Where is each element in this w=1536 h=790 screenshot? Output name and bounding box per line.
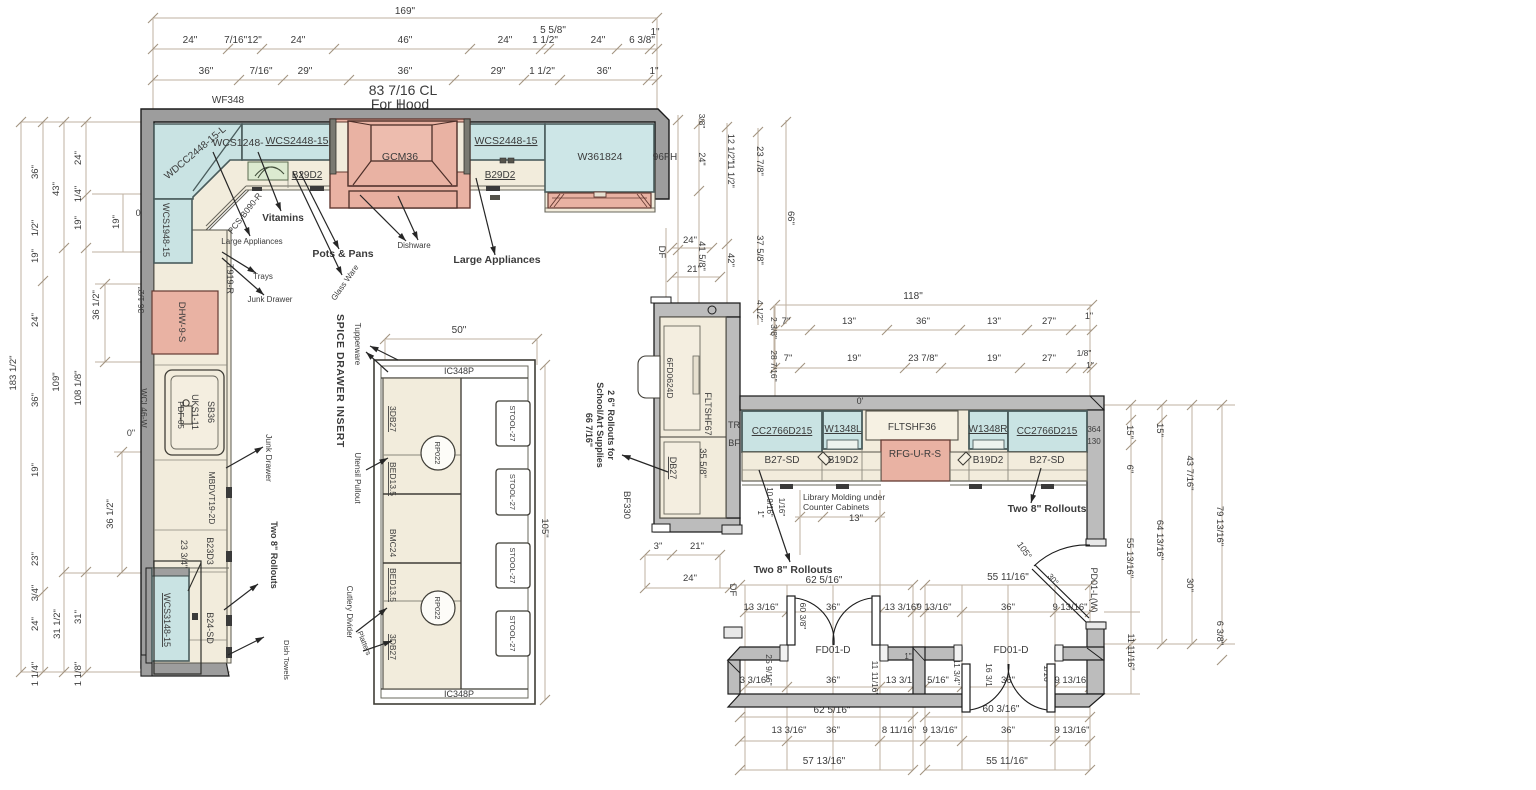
svg-text:15": 15" <box>1124 425 1135 439</box>
svg-text:11 1/2": 11 1/2" <box>726 160 736 188</box>
svg-text:RP022: RP022 <box>433 442 442 465</box>
svg-text:24": 24" <box>183 35 198 46</box>
svg-text:15": 15" <box>1154 423 1165 437</box>
svg-text:23": 23" <box>30 552 41 566</box>
svg-text:WCS2448-15: WCS2448-15 <box>474 135 537 147</box>
svg-text:1": 1" <box>756 510 765 517</box>
svg-text:B29D2: B29D2 <box>485 170 516 181</box>
svg-text:19": 19" <box>987 353 1001 364</box>
svg-text:43 7/16": 43 7/16" <box>1184 455 1195 490</box>
svg-text:1": 1" <box>904 652 911 661</box>
svg-text:Counter Cabinets: Counter Cabinets <box>803 502 869 512</box>
svg-text:24": 24" <box>697 152 707 165</box>
svg-text:9 13/16": 9 13/16" <box>1054 725 1089 736</box>
svg-text:FD01-D: FD01-D <box>993 645 1028 656</box>
svg-text:36": 36" <box>30 165 41 179</box>
svg-text:55 11/16": 55 11/16" <box>987 572 1029 583</box>
svg-text:DF: DF <box>727 584 738 597</box>
svg-text:7": 7" <box>784 353 793 364</box>
svg-text:WCL46-W: WCL46-W <box>139 388 149 427</box>
svg-text:WCS1248-: WCS1248- <box>212 137 264 149</box>
svg-text:IC348P: IC348P <box>444 366 474 376</box>
svg-text:19": 19" <box>73 216 84 230</box>
svg-text:13": 13" <box>849 513 863 524</box>
svg-text:1 1/8": 1 1/8" <box>73 662 84 687</box>
svg-text:31 1/2": 31 1/2" <box>52 609 63 639</box>
svg-text:57 13/16": 57 13/16" <box>803 756 846 767</box>
svg-text:96FH: 96FH <box>653 152 677 163</box>
svg-text:7/16"12": 7/16"12" <box>224 35 262 46</box>
svg-text:WF348: WF348 <box>212 95 245 106</box>
svg-text:55 11/16": 55 11/16" <box>986 756 1028 767</box>
svg-text:Tupperware: Tupperware <box>353 323 362 366</box>
svg-text:Two 8" Rollouts: Two 8" Rollouts <box>269 521 279 589</box>
svg-text:FLTSHF36: FLTSHF36 <box>888 422 937 433</box>
svg-text:STOOL-27: STOOL-27 <box>508 547 517 583</box>
svg-text:BED13.5: BED13.5 <box>388 462 398 496</box>
svg-text:105": 105" <box>539 518 550 537</box>
svg-text:FD01-D: FD01-D <box>815 645 850 656</box>
svg-text:Utensil Pullout: Utensil Pullout <box>353 452 362 504</box>
svg-text:9 13/16": 9 13/16" <box>922 725 957 736</box>
svg-text:25 9/16": 25 9/16" <box>764 654 774 685</box>
svg-text:PDF-05: PDF-05 <box>176 401 185 429</box>
svg-text:13 3/1: 13 3/1 <box>886 675 912 686</box>
svg-text:Library Molding under: Library Molding under <box>803 492 885 502</box>
svg-text:BED13.5: BED13.5 <box>388 568 398 602</box>
svg-text:1/4": 1/4" <box>73 186 84 203</box>
svg-text:11 3/4": 11 3/4" <box>952 659 962 685</box>
svg-text:6 3/8": 6 3/8" <box>1214 621 1225 646</box>
svg-text:364: 364 <box>1087 425 1101 434</box>
svg-text:19": 19" <box>111 215 122 229</box>
svg-text:79 13/16": 79 13/16" <box>1214 506 1225 546</box>
svg-text:SPICE DRAWER INSERT: SPICE DRAWER INSERT <box>334 314 346 448</box>
svg-text:1 1/2": 1 1/2" <box>532 35 558 46</box>
svg-text:28 7/16": 28 7/16" <box>769 350 779 381</box>
svg-text:6": 6" <box>1124 465 1135 474</box>
svg-text:Large Appliances: Large Appliances <box>453 254 540 266</box>
svg-text:36": 36" <box>199 66 214 77</box>
svg-text:B23D3: B23D3 <box>205 537 215 565</box>
svg-text:11 11/16": 11 11/16" <box>1126 634 1136 671</box>
svg-text:13 3/16": 13 3/16" <box>884 602 919 613</box>
svg-text:41 5/8": 41 5/8" <box>696 241 707 271</box>
svg-text:35 5/8": 35 5/8" <box>697 448 708 478</box>
svg-text:24": 24" <box>30 313 41 327</box>
svg-text:Two 8" Rollouts: Two 8" Rollouts <box>1008 503 1087 515</box>
svg-text:1/16": 1/16" <box>777 498 786 517</box>
svg-text:WCS3148-15: WCS3148-15 <box>162 593 172 647</box>
svg-text:4 1/2": 4 1/2" <box>755 300 765 322</box>
svg-text:36": 36" <box>826 725 840 736</box>
svg-text:1": 1" <box>1085 311 1093 321</box>
svg-text:1 1/4": 1 1/4" <box>30 662 41 687</box>
svg-text:24": 24" <box>498 35 513 46</box>
svg-text:B24-SD: B24-SD <box>205 612 215 644</box>
svg-text:WCS1948-15: WCS1948-15 <box>161 203 171 257</box>
svg-text:WCS2448-15: WCS2448-15 <box>265 135 328 147</box>
svg-text:0": 0" <box>127 428 135 438</box>
svg-text:9 13/16": 9 13/16" <box>1054 675 1089 686</box>
svg-text:STOOL-27: STOOL-27 <box>508 474 517 510</box>
svg-text:7/16": 7/16" <box>249 66 272 77</box>
svg-text:DHW-9-S: DHW-9-S <box>176 302 187 342</box>
svg-text:24": 24" <box>291 35 306 46</box>
svg-text:Dishware: Dishware <box>397 241 431 250</box>
svg-text:Pots & Pans: Pots & Pans <box>312 248 373 260</box>
svg-text:3/8": 3/8" <box>697 114 707 129</box>
svg-text:31": 31" <box>73 610 84 624</box>
svg-text:2 6" Rollouts for: 2 6" Rollouts for <box>606 390 616 460</box>
svg-text:Large Appliances: Large Appliances <box>221 237 282 246</box>
svg-text:43": 43" <box>51 182 62 196</box>
svg-text:3DB27: 3DB27 <box>388 406 398 432</box>
svg-text:2 3/8": 2 3/8" <box>769 317 779 339</box>
svg-text:24": 24" <box>30 617 41 631</box>
svg-text:60 3/8": 60 3/8" <box>798 603 808 630</box>
svg-text:108 1/8": 108 1/8" <box>73 370 84 405</box>
svg-text:5/16": 5/16" <box>927 675 949 686</box>
svg-text:B27-SD: B27-SD <box>764 455 799 466</box>
svg-text:1": 1" <box>650 27 660 38</box>
svg-text:Two 8" Rollouts: Two 8" Rollouts <box>754 564 833 576</box>
svg-text:CC2766D215: CC2766D215 <box>752 426 813 437</box>
svg-text:24": 24" <box>591 35 606 46</box>
svg-text:TR: TR <box>728 420 740 430</box>
svg-text:DB27: DB27 <box>668 457 678 480</box>
svg-text:3/4": 3/4" <box>30 585 41 602</box>
svg-text:23 7/8": 23 7/8" <box>754 146 765 176</box>
svg-text:64 13/16": 64 13/16" <box>1154 520 1165 560</box>
svg-text:30": 30" <box>1184 578 1195 592</box>
svg-text:118": 118" <box>903 291 923 302</box>
svg-text:24": 24" <box>683 235 697 246</box>
svg-text:W1348R: W1348R <box>969 424 1008 435</box>
svg-text:16 3/1: 16 3/1 <box>984 663 994 687</box>
svg-text:55 13/16": 55 13/16" <box>1124 538 1135 578</box>
svg-text:13": 13" <box>987 316 1001 327</box>
svg-text:62 5/16": 62 5/16" <box>806 575 843 586</box>
svg-text:36": 36" <box>30 393 41 407</box>
svg-text:19": 19" <box>847 353 861 364</box>
svg-text:GCM36: GCM36 <box>382 151 418 163</box>
svg-text:1 1/2": 1 1/2" <box>529 66 555 77</box>
svg-text:Trays: Trays <box>253 272 273 281</box>
svg-text:27": 27" <box>1042 353 1056 364</box>
svg-text:42": 42" <box>725 253 736 267</box>
svg-text:3": 3" <box>654 541 663 552</box>
svg-text:3DB27: 3DB27 <box>388 634 398 660</box>
svg-text:29": 29" <box>298 66 313 77</box>
svg-text:RP022: RP022 <box>433 597 442 620</box>
svg-text:Dish Towels: Dish Towels <box>282 640 291 680</box>
svg-text:1/2": 1/2" <box>30 220 41 237</box>
svg-text:1/8": 1/8" <box>1077 348 1092 358</box>
svg-text:36": 36" <box>398 66 413 77</box>
svg-text:MBDVT19-2D: MBDVT19-2D <box>207 472 217 525</box>
svg-text:24": 24" <box>683 573 697 584</box>
svg-text:School/Art Supplies: School/Art Supplies <box>595 382 605 468</box>
svg-text:169": 169" <box>395 6 416 17</box>
svg-text:19": 19" <box>30 463 41 477</box>
svg-text:50": 50" <box>452 325 467 336</box>
svg-text:23 3/4": 23 3/4" <box>179 540 189 568</box>
svg-text:29": 29" <box>491 66 506 77</box>
svg-text:19": 19" <box>30 249 41 263</box>
svg-text:36 1/2": 36 1/2" <box>136 287 146 314</box>
svg-text:36": 36" <box>1001 725 1015 736</box>
svg-text:23 7/8": 23 7/8" <box>908 353 938 364</box>
svg-text:STOOL-27: STOOL-27 <box>508 405 517 441</box>
svg-text:B19D2: B19D2 <box>973 455 1004 466</box>
svg-text:37 5/8": 37 5/8" <box>754 235 765 265</box>
svg-text:36": 36" <box>1001 602 1015 613</box>
svg-text:109": 109" <box>51 372 62 391</box>
svg-text:36": 36" <box>826 675 840 686</box>
svg-text:SB36: SB36 <box>206 401 216 423</box>
svg-text:Junk Drawer: Junk Drawer <box>248 295 293 304</box>
svg-text:13 3/16": 13 3/16" <box>743 602 778 613</box>
svg-text:B19D2: B19D2 <box>828 455 859 466</box>
svg-text:13": 13" <box>842 316 856 327</box>
svg-text:BF: BF <box>728 438 740 448</box>
svg-text:1": 1" <box>649 66 659 77</box>
svg-text:0': 0' <box>857 396 864 406</box>
svg-text:DF: DF <box>656 246 667 259</box>
svg-text:CC2766D215: CC2766D215 <box>1017 426 1078 437</box>
svg-text:STOOL-27: STOOL-27 <box>508 615 517 651</box>
svg-text:21": 21" <box>690 541 704 552</box>
svg-text:7": 7" <box>782 316 791 327</box>
svg-text:Cutlery Divider: Cutlery Divider <box>345 586 354 639</box>
svg-text:13 3/16": 13 3/16" <box>771 725 806 736</box>
svg-text:60 3/16": 60 3/16" <box>983 704 1020 715</box>
svg-text:BMC24: BMC24 <box>388 529 398 558</box>
svg-text:11 11/16": 11 11/16" <box>870 661 880 696</box>
svg-text:27": 27" <box>1042 316 1056 327</box>
svg-text:Vitamins: Vitamins <box>262 213 304 224</box>
svg-text:PD01-L(W): PD01-L(W) <box>1089 567 1099 612</box>
svg-text:36": 36" <box>916 316 930 327</box>
svg-text:RFG-U-R-S: RFG-U-R-S <box>889 449 942 460</box>
svg-text:12 1/2": 12 1/2" <box>726 134 736 162</box>
svg-text:8 11/16": 8 11/16" <box>882 725 916 736</box>
svg-text:24": 24" <box>73 151 84 165</box>
svg-text:FLTSHF67: FLTSHF67 <box>703 392 713 435</box>
svg-text:46": 46" <box>398 35 413 46</box>
svg-text:IC348P: IC348P <box>444 689 474 699</box>
svg-text:183 1/2": 183 1/2" <box>8 355 19 390</box>
svg-text:66 7/16": 66 7/16" <box>584 413 594 447</box>
svg-text:B27-SD: B27-SD <box>1029 455 1064 466</box>
svg-text:9 13/16": 9 13/16" <box>916 602 951 613</box>
svg-text:36": 36" <box>597 66 612 77</box>
svg-text:6FD0624D: 6FD0624D <box>665 357 675 398</box>
svg-text:BF330: BF330 <box>621 491 632 519</box>
svg-text:W361824: W361824 <box>578 151 623 163</box>
svg-text:W1348L: W1348L <box>824 424 862 435</box>
svg-text:36 1/2": 36 1/2" <box>105 499 116 529</box>
svg-text:66": 66" <box>785 211 796 225</box>
svg-text:1": 1" <box>1086 360 1094 370</box>
svg-text:36 1/2": 36 1/2" <box>91 290 102 320</box>
svg-text:130: 130 <box>1087 437 1101 446</box>
svg-text:36": 36" <box>826 602 840 613</box>
svg-text:Junk Drawer: Junk Drawer <box>264 434 274 482</box>
svg-text:UKS1-11: UKS1-11 <box>190 394 200 430</box>
